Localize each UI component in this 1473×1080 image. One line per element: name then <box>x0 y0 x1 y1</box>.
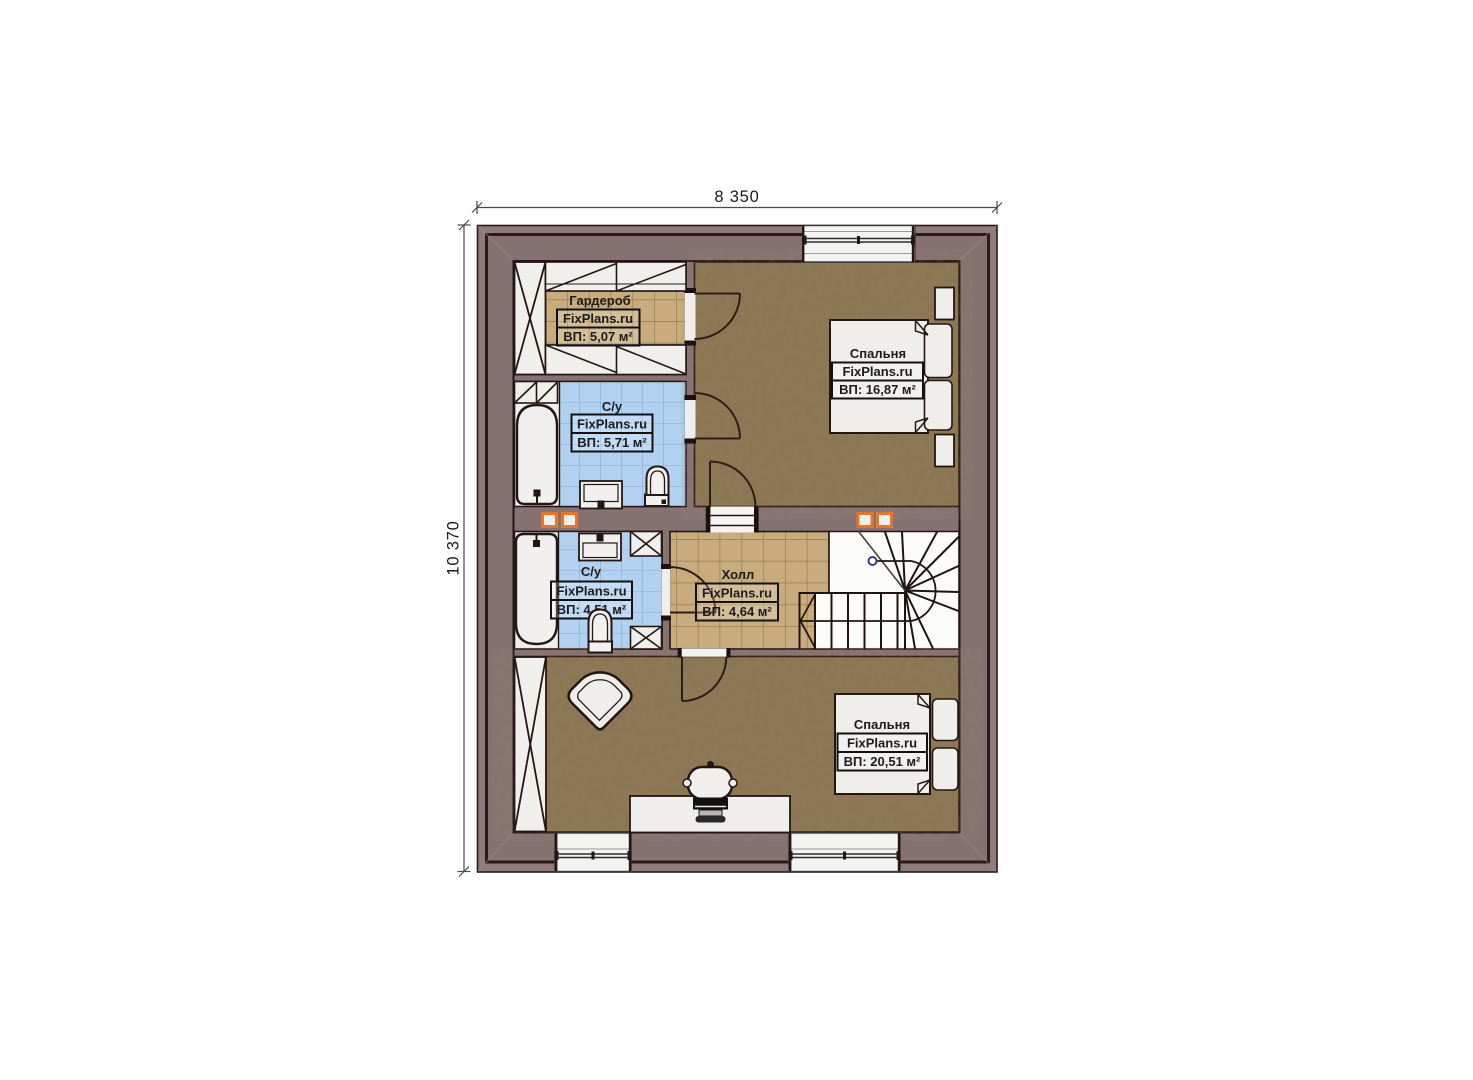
svg-text:FixPlans.ru: FixPlans.ru <box>556 584 626 599</box>
svg-text:Гардероб: Гардероб <box>569 293 630 308</box>
svg-text:10 370: 10 370 <box>445 520 463 575</box>
svg-text:ВП: 5,71 м²: ВП: 5,71 м² <box>577 435 647 450</box>
svg-text:8 350: 8 350 <box>714 188 759 206</box>
svg-text:Спальня: Спальня <box>854 717 910 732</box>
svg-text:FixPlans.ru: FixPlans.ru <box>577 417 647 432</box>
svg-text:ВП: 20,51 м²: ВП: 20,51 м² <box>844 754 921 769</box>
svg-text:FixPlans.ru: FixPlans.ru <box>842 364 912 379</box>
svg-text:FixPlans.ru: FixPlans.ru <box>847 736 917 751</box>
svg-text:С/у: С/у <box>602 399 623 414</box>
svg-text:С/у: С/у <box>581 564 602 579</box>
svg-text:ВП: 4,64 м²: ВП: 4,64 м² <box>702 604 772 619</box>
svg-text:ВП: 5,07 м²: ВП: 5,07 м² <box>563 329 633 344</box>
svg-text:FixPlans.ru: FixPlans.ru <box>702 586 772 601</box>
svg-text:Спальня: Спальня <box>850 346 906 361</box>
svg-text:Холл: Холл <box>722 567 755 582</box>
svg-text:FixPlans.ru: FixPlans.ru <box>563 311 633 326</box>
svg-text:ВП: 16,87 м²: ВП: 16,87 м² <box>839 382 916 397</box>
